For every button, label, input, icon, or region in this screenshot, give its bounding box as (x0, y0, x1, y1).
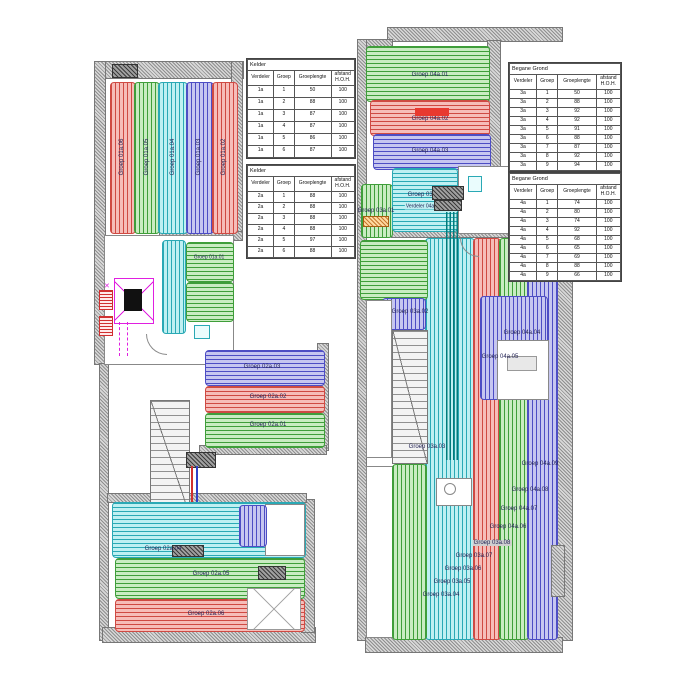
table-cell: 69 (558, 253, 596, 262)
table-cell: 92 (558, 226, 596, 235)
group-label: Groep 02a.04 (145, 546, 182, 552)
table-cell: 5 (274, 133, 294, 145)
column-header: Verdeler (510, 75, 537, 90)
table-row: 4a966100 (510, 271, 621, 280)
table-cell: 5 (537, 235, 558, 244)
table-cell: 7 (537, 143, 558, 152)
table-cell: 1a (248, 145, 274, 157)
column-header: afstandH.O.H. (596, 185, 620, 200)
table-row: 1a387100 (248, 109, 355, 121)
table-cell: 100 (596, 152, 620, 161)
data-table: KelderVerdelerGroepGroeplengteafstandH.O… (247, 59, 355, 158)
table-cell: 92 (558, 116, 596, 125)
manifold-hatch (363, 216, 389, 227)
table-cell: 100 (596, 262, 620, 271)
equipment-hatch (258, 566, 286, 580)
table-cell: 100 (596, 271, 620, 280)
table-cell: 74 (558, 199, 596, 208)
column-header: Verdeler (248, 177, 274, 192)
table-cell: 3a (510, 143, 537, 152)
table-row: 4a568100 (510, 235, 621, 244)
table-cell: 88 (558, 134, 596, 143)
table-cell: 4a (510, 244, 537, 253)
table-row: 4a665100 (510, 244, 621, 253)
table-cell: 100 (596, 98, 620, 107)
table-cell: 3 (537, 107, 558, 116)
table-cell: 87 (294, 145, 331, 157)
table-cell: 88 (294, 191, 331, 202)
table-row: 4a374100 (510, 217, 621, 226)
table-cell: 92 (558, 107, 596, 116)
table-cell: 8 (537, 152, 558, 161)
table-cell: 3 (274, 109, 294, 121)
table-cell: 100 (596, 116, 620, 125)
column-header: Groep (537, 185, 558, 200)
table-cell: 4 (537, 226, 558, 235)
table-cell: 100 (331, 224, 355, 235)
table-row: 3a392100 (510, 107, 621, 116)
group-label: Groep 02a.02 (250, 394, 287, 400)
group-label: Groep 03a.04 (423, 592, 460, 598)
table-cell: 3a (510, 152, 537, 161)
table-title: Kelder (248, 166, 355, 177)
column-header: afstandH.O.H. (331, 177, 355, 192)
data-table: Begane GrondVerdelerGroepGroeplengteafst… (509, 63, 621, 171)
table-cell: 4 (274, 224, 294, 235)
table-begane-grond-3a: Begane GrondVerdelerGroepGroeplengteafst… (508, 62, 622, 172)
table-cell: 74 (558, 217, 596, 226)
table-cell: 2 (537, 208, 558, 217)
table-cell: 4a (510, 262, 537, 271)
table-cell: 9 (537, 161, 558, 170)
table-cell: 100 (331, 97, 355, 109)
table-row: 2a188100 (248, 191, 355, 202)
table-cell: 65 (558, 244, 596, 253)
table-cell: 100 (331, 121, 355, 133)
table-cell: 2a (248, 191, 274, 202)
radiator (99, 316, 113, 336)
group-label: Groep 03a.01 (358, 208, 395, 214)
table-row: 2a688100 (248, 246, 355, 257)
table-cell: 100 (596, 89, 620, 98)
table-cell: 1a (248, 121, 274, 133)
table-title: Begane Grond (510, 64, 621, 75)
table-title: Begane Grond (510, 174, 621, 185)
table-cell: 3a (510, 134, 537, 143)
wall-segment (100, 364, 108, 640)
drawing-canvas: ✕ (0, 0, 700, 700)
table-cell: 4 (274, 121, 294, 133)
table-kelder-2a: KelderVerdelerGroepGroeplengteafstandH.O… (246, 164, 356, 259)
manifold-4a (434, 200, 462, 211)
column-header: Groeplengte (558, 185, 596, 200)
table-cell: 88 (294, 224, 331, 235)
table-cell: 4a (510, 235, 537, 244)
table-row: 3a994100 (510, 161, 621, 170)
table-cell: 88 (294, 97, 331, 109)
table-cell: 2a (248, 202, 274, 213)
room-outline (366, 300, 392, 458)
group-label: Groep 03a.08 (473, 540, 512, 546)
loop-03a-04-area (392, 464, 427, 640)
loop-03a-02-area (360, 240, 428, 300)
table-cell: 100 (596, 134, 620, 143)
table-cell: 80 (558, 208, 596, 217)
table-row: 3a787100 (510, 143, 621, 152)
group-label: Groep 03a.06 (445, 566, 482, 572)
column-header: Groep (537, 75, 558, 90)
table-cell: 2 (274, 97, 294, 109)
group-label: Groep 02a.03 (244, 364, 281, 370)
table-cell: 50 (558, 89, 596, 98)
table-title: Kelder (248, 60, 355, 71)
table-cell: 2 (274, 202, 294, 213)
table-cell: 7 (537, 253, 558, 262)
wall-segment (366, 638, 562, 652)
table-cell: 100 (596, 125, 620, 134)
wall-pillar (552, 546, 564, 596)
table-cell: 2a (248, 246, 274, 257)
table-cell: 4a (510, 217, 537, 226)
group-label: Groep 04a.03 (412, 148, 449, 154)
table-cell: 88 (294, 213, 331, 224)
table-cell: 3a (510, 98, 537, 107)
table-cell: 100 (331, 246, 355, 257)
group-label: Groep 04a.07 (501, 506, 538, 512)
group-label: Groep 04a.05 (482, 354, 519, 360)
table-cell: 3a (510, 116, 537, 125)
group-label: Groep 04a.01 (412, 72, 449, 78)
highlight-box (415, 108, 449, 116)
column-header: afstandH.O.H. (331, 71, 355, 86)
table-cell: 1a (248, 85, 274, 97)
manifold-3a (432, 186, 464, 200)
table-cell: 1a (248, 97, 274, 109)
column-header: Verdeler (510, 185, 537, 200)
table-cell: 88 (294, 246, 331, 257)
table-cell: 100 (596, 226, 620, 235)
table-cell: 100 (596, 107, 620, 116)
room-outline (366, 466, 394, 638)
table-cell: 66 (558, 271, 596, 280)
table-cell: 2 (537, 98, 558, 107)
group-label: Groep 01a.05 (144, 139, 150, 176)
table-row: 1a487100 (248, 121, 355, 133)
table-cell: 2a (248, 235, 274, 246)
group-label: Groep 02a.06 (188, 611, 225, 617)
loop-bathroom (239, 505, 267, 547)
table-cell: 2a (248, 213, 274, 224)
group-label: Groep 03a.05 (434, 579, 471, 585)
group-label: Groep 02a.05 (193, 571, 230, 577)
table-cell: 100 (331, 191, 355, 202)
data-table: KelderVerdelerGroepGroeplengteafstandH.O… (247, 165, 355, 258)
table-cell: 6 (274, 246, 294, 257)
column-header: Groep (274, 71, 294, 86)
group-label: Groep 01a.06 (119, 139, 125, 176)
table-kelder-1a: KelderVerdelerGroepGroeplengteafstandH.O… (246, 58, 356, 159)
table-row: 2a488100 (248, 224, 355, 235)
table-cell: 5 (274, 235, 294, 246)
table-row: 4a888100 (510, 262, 621, 271)
group-label: Groep 03a.07 (456, 553, 493, 559)
group-label: Groep 01a.01 (194, 256, 225, 261)
table-cell: 4a (510, 253, 537, 262)
group-label: Groep 02a.01 (250, 422, 287, 428)
supply-pipe-bundle (446, 212, 458, 460)
table-cell: 1 (537, 199, 558, 208)
table-cell: 91 (558, 125, 596, 134)
staircase (150, 400, 190, 514)
table-row: 3a288100 (510, 98, 621, 107)
group-label: Groep 03a.03 (409, 444, 446, 450)
table-cell: 100 (331, 213, 355, 224)
table-row: 4a492100 (510, 226, 621, 235)
room-outline (265, 504, 305, 556)
table-cell: 100 (596, 161, 620, 170)
table-cell: 3a (510, 89, 537, 98)
table-cell: 4a (510, 271, 537, 280)
group-label: Groep 01a.03 (196, 139, 202, 176)
table-row: 3a688100 (510, 134, 621, 143)
table-begane-grond-4a: Begane GrondVerdelerGroepGroeplengteafst… (508, 172, 622, 282)
table-cell: 5 (537, 125, 558, 134)
table-cell: 3a (510, 107, 537, 116)
column-header: Groep (274, 177, 294, 192)
table-cell: 68 (558, 235, 596, 244)
wall-segment (358, 40, 366, 640)
table-cell: 100 (331, 202, 355, 213)
dashed-line (119, 322, 120, 356)
column-header: Groeplengte (558, 75, 596, 90)
table-cell: 6 (537, 244, 558, 253)
bathroom-fixture (468, 176, 482, 192)
group-label: Verdeler 04a (405, 205, 435, 210)
table-row: 4a280100 (510, 208, 621, 217)
table-cell: 100 (596, 217, 620, 226)
table-cell: 8 (537, 262, 558, 271)
bathroom-fixture (194, 325, 210, 339)
table-cell: 1 (537, 89, 558, 98)
table-cell: 100 (596, 235, 620, 244)
table-cell: 1a (248, 109, 274, 121)
shower-tray (247, 588, 301, 630)
table-row: 1a586100 (248, 133, 355, 145)
table-cell: 92 (558, 152, 596, 161)
elevator-cabin (124, 289, 142, 311)
table-cell: 3 (537, 217, 558, 226)
loop-01a-01 (186, 242, 234, 282)
reference-cross-icon: ✕ (104, 283, 110, 290)
table-cell: 100 (331, 235, 355, 246)
table-cell: 4a (510, 208, 537, 217)
table-cell: 97 (294, 235, 331, 246)
table-cell: 88 (558, 98, 596, 107)
table-row: 1a687100 (248, 145, 355, 157)
table-row: 3a892100 (510, 152, 621, 161)
table-cell: 100 (596, 199, 620, 208)
table-row: 3a492100 (510, 116, 621, 125)
group-label: Groep 04a.04 (504, 330, 541, 336)
table-row: 4a769100 (510, 253, 621, 262)
table-cell: 2a (248, 224, 274, 235)
equipment-hatch (112, 64, 138, 78)
table-cell: 4a (510, 226, 537, 235)
group-label: Groep 01a.04 (170, 139, 176, 176)
table-cell: 100 (331, 145, 355, 157)
table-cell: 100 (331, 133, 355, 145)
column-header: Groeplengte (294, 71, 331, 86)
table-cell: 87 (294, 109, 331, 121)
table-row: 3a591100 (510, 125, 621, 134)
table-row: 1a150100 (248, 85, 355, 97)
loop-01a-01b (186, 282, 234, 322)
sink-icon (444, 483, 456, 495)
table-cell: 87 (558, 143, 596, 152)
table-row: 1a288100 (248, 97, 355, 109)
table-cell: 100 (331, 109, 355, 121)
loop-02a-01 (205, 413, 325, 448)
table-cell: 3a (510, 125, 537, 134)
table-cell: 100 (596, 208, 620, 217)
dashed-line (127, 322, 128, 356)
table-cell: 100 (596, 253, 620, 262)
table-cell: 87 (294, 121, 331, 133)
column-header: afstandH.O.H. (596, 75, 620, 90)
table-row: 2a597100 (248, 235, 355, 246)
table-row: 2a388100 (248, 213, 355, 224)
table-cell: 100 (596, 244, 620, 253)
radiator (99, 290, 113, 310)
group-label: Groep 03a.02 (392, 309, 429, 315)
table-row: 3a150100 (510, 89, 621, 98)
table-cell: 4a (510, 199, 537, 208)
group-label: Groep 04a.02 (412, 116, 449, 122)
group-label: Groep 04a.06 (490, 524, 527, 530)
table-cell: 6 (274, 145, 294, 157)
table-cell: 9 (537, 271, 558, 280)
group-label: Groep 04a.08 (512, 487, 549, 493)
wall-segment (388, 28, 562, 41)
table-cell: 1a (248, 133, 274, 145)
group-label: Groep 01a.02 (221, 139, 227, 176)
table-cell: 88 (558, 262, 596, 271)
column-header: Verdeler (248, 71, 274, 86)
table-cell: 1 (274, 191, 294, 202)
table-cell: 86 (294, 133, 331, 145)
table-cell: 3a (510, 161, 537, 170)
table-cell: 50 (294, 85, 331, 97)
table-cell: 3 (274, 213, 294, 224)
wall-segment (108, 494, 306, 502)
table-row: 2a288100 (248, 202, 355, 213)
table-cell: 6 (537, 134, 558, 143)
table-cell: 4 (537, 116, 558, 125)
table-cell: 94 (558, 161, 596, 170)
table-cell: 88 (294, 202, 331, 213)
column-header: Groeplengte (294, 177, 331, 192)
loop-hallway (162, 240, 186, 334)
group-label: Groep 04a.09 (522, 461, 559, 467)
table-cell: 100 (331, 85, 355, 97)
table-row: 4a174100 (510, 199, 621, 208)
table-cell: 1 (274, 85, 294, 97)
data-table: Begane GrondVerdelerGroepGroeplengteafst… (509, 173, 621, 281)
table-cell: 100 (596, 143, 620, 152)
